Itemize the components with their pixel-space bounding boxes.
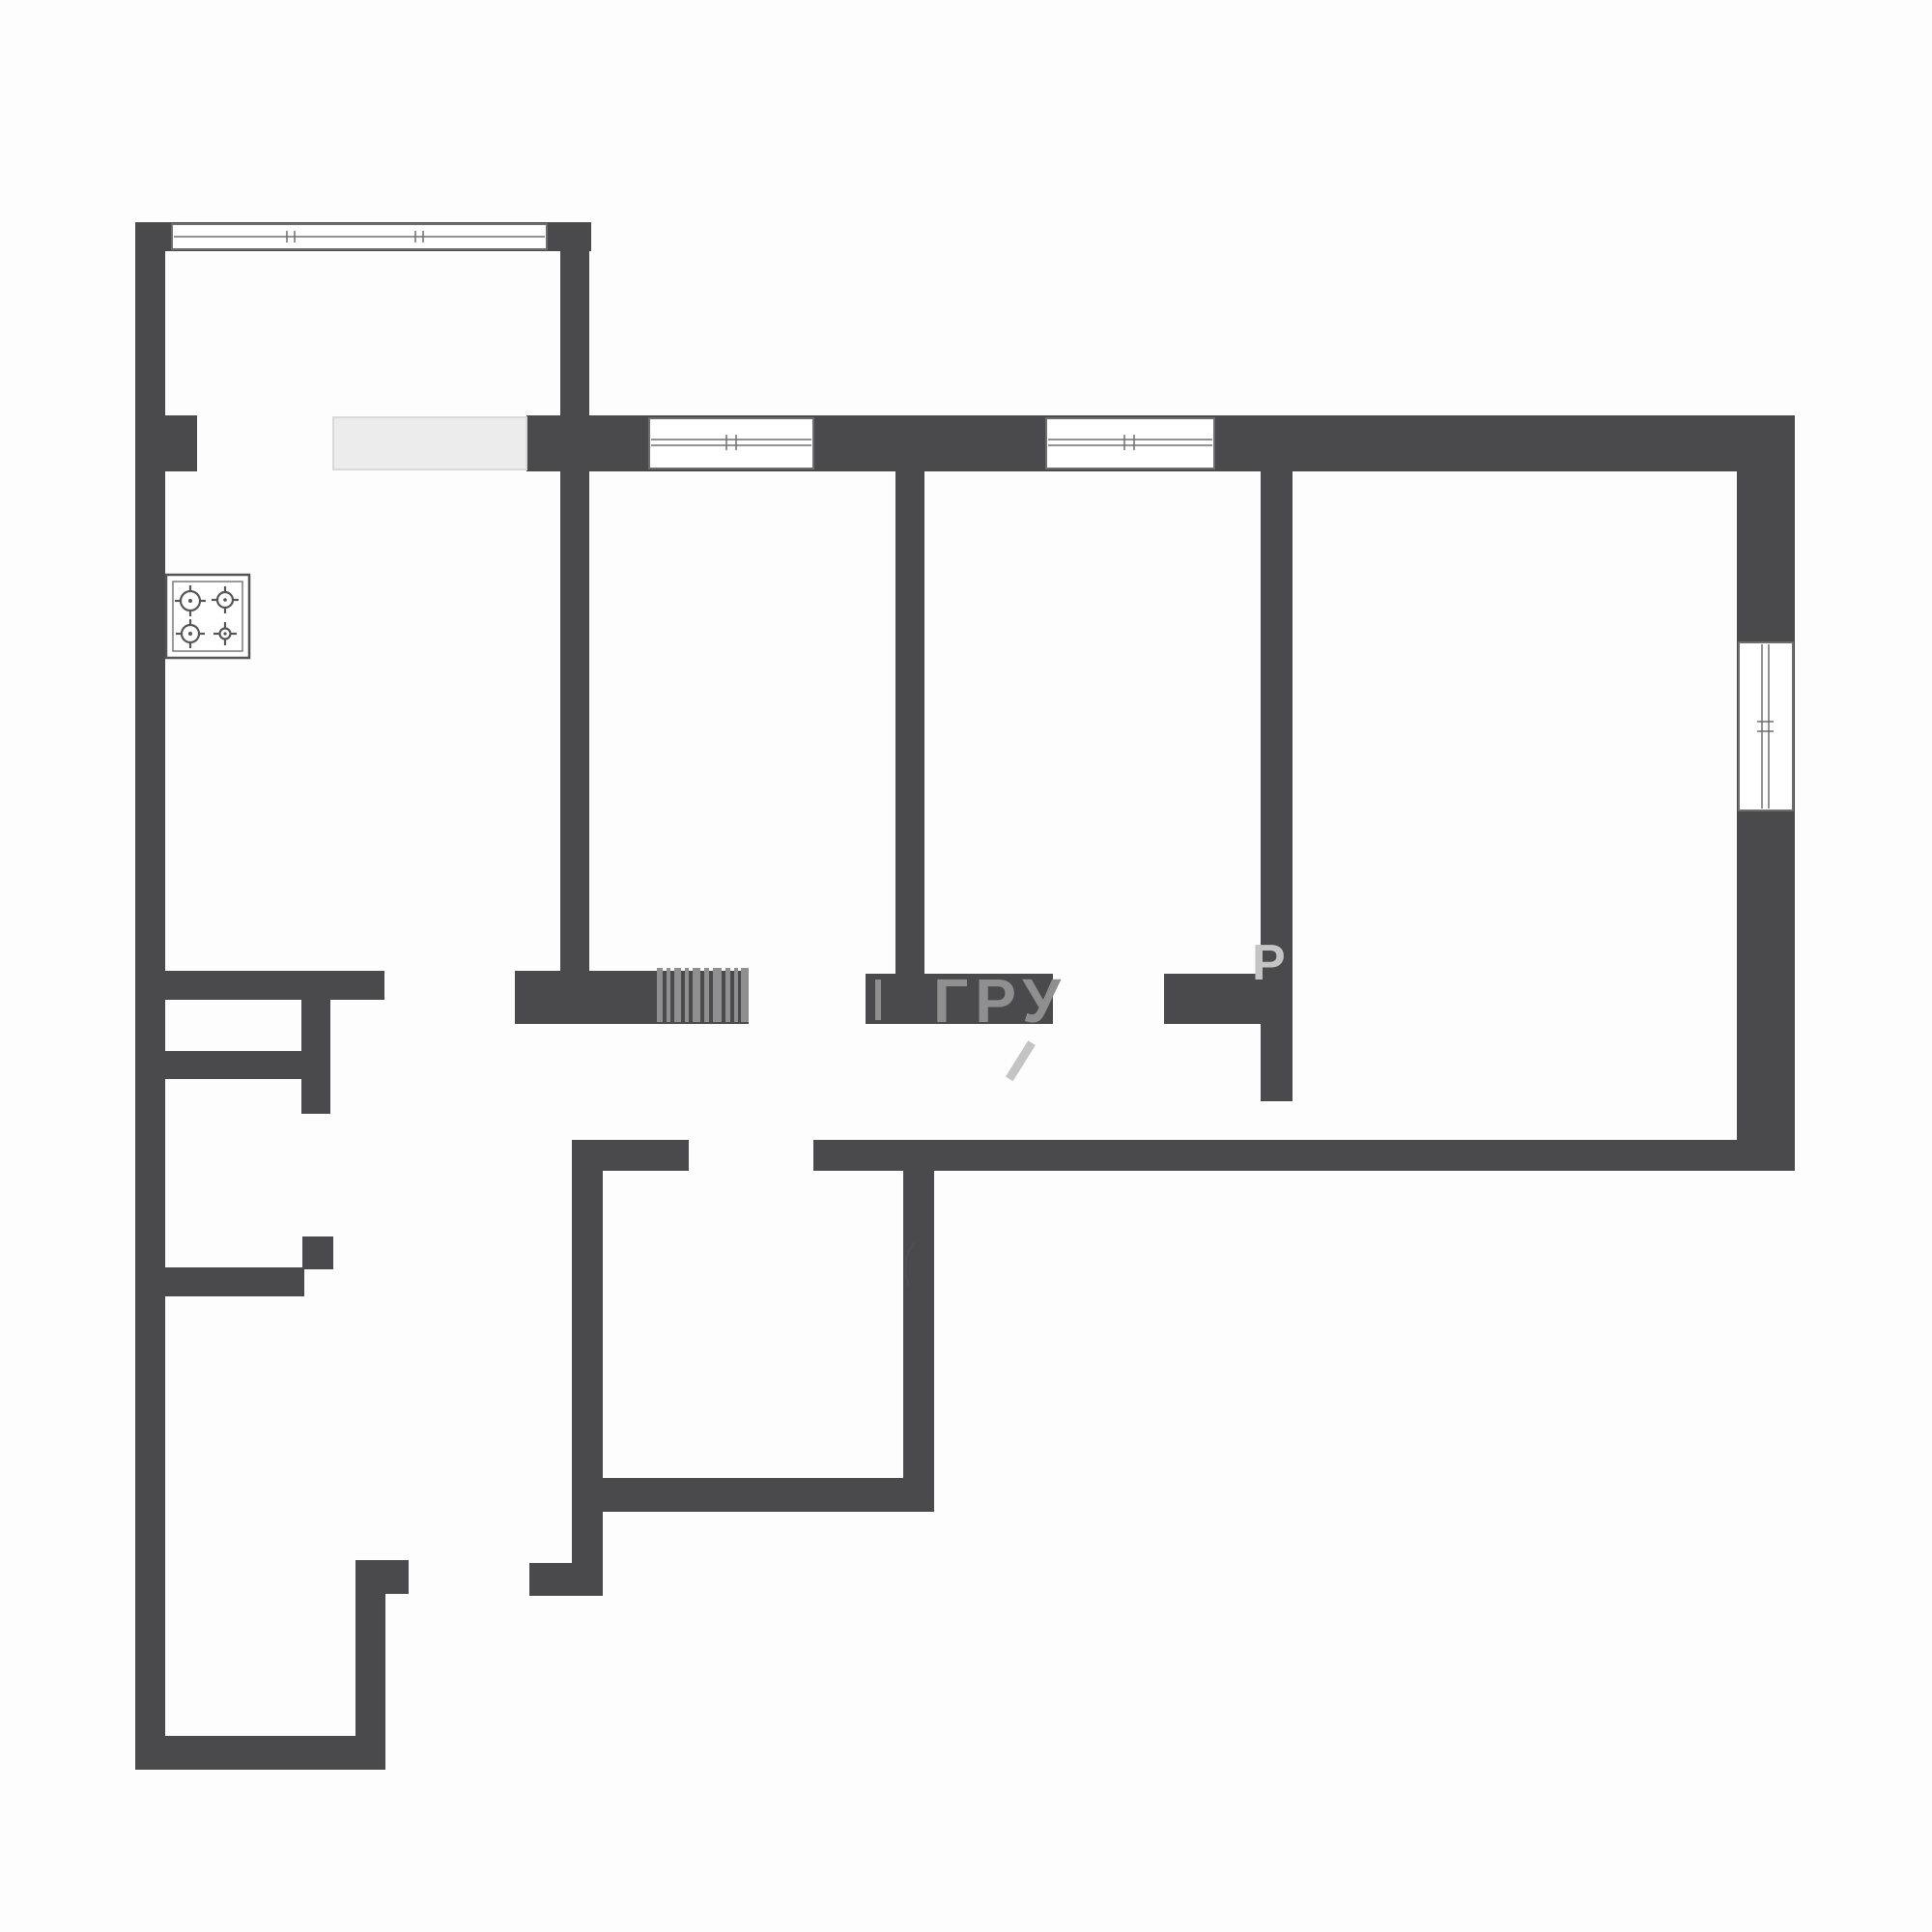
watermark-text: ГРУ (933, 966, 1067, 1036)
wall-room-a-b (895, 471, 924, 976)
big-room-window-icon (1739, 642, 1793, 810)
room-a-window-icon (649, 418, 813, 469)
wall-bath-east-upper (301, 998, 330, 1114)
kitchen-counter (333, 417, 526, 469)
floor-plan-canvas: ГРУ Р (0, 0, 1932, 1932)
watermark-tick (875, 980, 881, 1020)
wall-big-room-bottom (813, 1140, 1795, 1171)
wall-niche-south (162, 1051, 301, 1079)
windows (172, 224, 1793, 810)
wall-bottom-room-left (572, 1140, 603, 1596)
wall-foot-big-room (1164, 974, 1261, 1024)
wall-bottom-left-east (355, 1560, 385, 1770)
wall-bottom-room-left-stub (529, 1563, 572, 1596)
kitchen-window-icon (172, 224, 547, 249)
floor-plan: ГРУ Р (0, 0, 1932, 1932)
wall-counter-right (526, 415, 591, 471)
wall-bath-south (162, 1267, 304, 1296)
wall-bottom-left-cap (385, 1560, 409, 1594)
wall-hall-north (162, 971, 384, 1000)
wall-kitchen-right (560, 222, 589, 1024)
watermark-letter-fragment (1006, 1040, 1036, 1081)
room-b-window-icon (1046, 418, 1214, 469)
watermark-text-fragment: Р (1252, 935, 1286, 991)
wall-pier-left (135, 415, 197, 471)
wall-bottom-room-south (572, 1478, 934, 1512)
wall-bottom-room-right (903, 1171, 934, 1480)
wall-room-b-big (1261, 471, 1293, 1101)
stove-icon (166, 575, 249, 658)
wall-bath-east-lower (302, 1236, 333, 1269)
wall-bottom-left-south (135, 1736, 385, 1770)
